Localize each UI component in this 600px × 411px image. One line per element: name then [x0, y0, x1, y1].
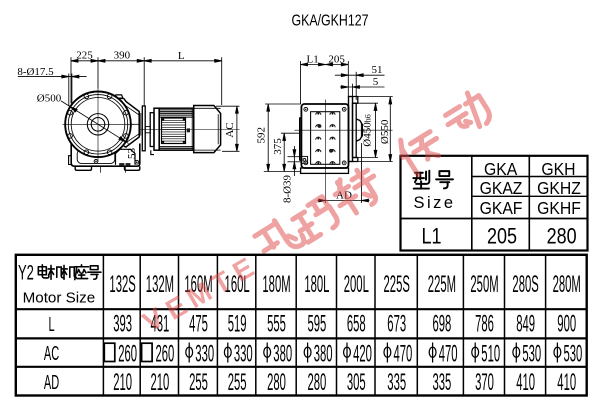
svg-text:330: 330	[195, 340, 214, 367]
svg-text:Ø550: Ø550	[379, 119, 391, 144]
svg-text:GKAZ: GKAZ	[480, 178, 523, 198]
svg-text:786: 786	[475, 310, 494, 337]
svg-text:335: 335	[432, 368, 451, 395]
svg-text:380: 380	[314, 340, 333, 367]
svg-text:200L: 200L	[344, 270, 369, 297]
svg-text:GKH: GKH	[541, 159, 575, 179]
svg-text:L: L	[48, 314, 54, 336]
svg-text:255: 255	[228, 368, 247, 395]
svg-text:393: 393	[113, 310, 132, 337]
svg-text:GKA/GKH127: GKA/GKH127	[291, 11, 368, 29]
svg-text:Ø450h6: Ø450h6	[361, 114, 373, 146]
svg-text:8-Ø39: 8-Ø39	[282, 174, 294, 203]
svg-text:51: 51	[372, 64, 383, 76]
svg-text:225M: 225M	[428, 270, 456, 297]
svg-text:900: 900	[557, 310, 576, 337]
svg-text:AC: AC	[44, 343, 60, 365]
svg-text:205: 205	[328, 53, 345, 65]
svg-text:698: 698	[432, 310, 451, 337]
svg-text:673: 673	[387, 310, 406, 337]
svg-text:Motor Size: Motor Size	[23, 290, 96, 307]
svg-text:GKHF: GKHF	[537, 198, 581, 218]
svg-text:210: 210	[113, 368, 132, 395]
svg-text:AC: AC	[224, 122, 236, 137]
svg-text:53: 53	[126, 148, 138, 160]
svg-text:180L: 180L	[304, 270, 329, 297]
svg-text:410: 410	[516, 368, 535, 395]
svg-text:GKA: GKA	[484, 159, 518, 179]
svg-text:Y2: Y2	[18, 260, 34, 284]
svg-text:GKAF: GKAF	[480, 198, 523, 218]
svg-text:470: 470	[439, 340, 458, 367]
svg-text:L: L	[178, 50, 185, 62]
svg-text:475: 475	[189, 310, 208, 337]
svg-text:330: 330	[234, 340, 253, 367]
svg-text:335: 335	[387, 368, 406, 395]
svg-text:250M: 250M	[470, 270, 498, 297]
svg-text:592: 592	[256, 127, 268, 144]
svg-text:L1: L1	[421, 225, 441, 249]
svg-text:305: 305	[347, 368, 366, 395]
svg-text:225S: 225S	[384, 270, 410, 297]
svg-text:Ø500: Ø500	[37, 93, 62, 105]
svg-text:255: 255	[189, 368, 208, 395]
svg-text:530: 530	[563, 340, 582, 367]
svg-text:5: 5	[373, 76, 379, 88]
svg-text:280M: 280M	[553, 270, 581, 297]
svg-text:GKHZ: GKHZ	[537, 178, 581, 198]
svg-text:519: 519	[228, 310, 247, 337]
svg-text:410: 410	[557, 368, 576, 395]
svg-text:AD: AD	[44, 371, 59, 393]
svg-text:L1: L1	[306, 53, 318, 65]
svg-text:849: 849	[516, 310, 535, 337]
svg-text:8-Ø17.5: 8-Ø17.5	[17, 66, 54, 78]
svg-text:370: 370	[475, 368, 494, 395]
svg-text:470: 470	[393, 340, 412, 367]
svg-text:205: 205	[487, 225, 517, 249]
svg-text:595: 595	[307, 310, 326, 337]
svg-text:658: 658	[347, 310, 366, 337]
svg-text:Size: Size	[413, 194, 455, 212]
svg-text:180M: 180M	[262, 270, 290, 297]
svg-text:280: 280	[307, 368, 326, 395]
svg-text:260: 260	[118, 340, 137, 367]
svg-text:280: 280	[267, 368, 286, 395]
svg-text:260: 260	[155, 340, 174, 367]
svg-text:132S: 132S	[109, 270, 135, 297]
svg-text:420: 420	[353, 340, 372, 367]
svg-text:375: 375	[272, 138, 284, 155]
svg-text:280: 280	[547, 225, 577, 249]
svg-text:390: 390	[114, 49, 131, 61]
svg-text:380: 380	[273, 340, 292, 367]
svg-text:510: 510	[481, 340, 500, 367]
svg-text:555: 555	[267, 310, 286, 337]
svg-text:210: 210	[150, 368, 169, 395]
svg-text:530: 530	[522, 340, 541, 367]
svg-text:225: 225	[76, 50, 93, 62]
svg-text:280S: 280S	[512, 270, 538, 297]
